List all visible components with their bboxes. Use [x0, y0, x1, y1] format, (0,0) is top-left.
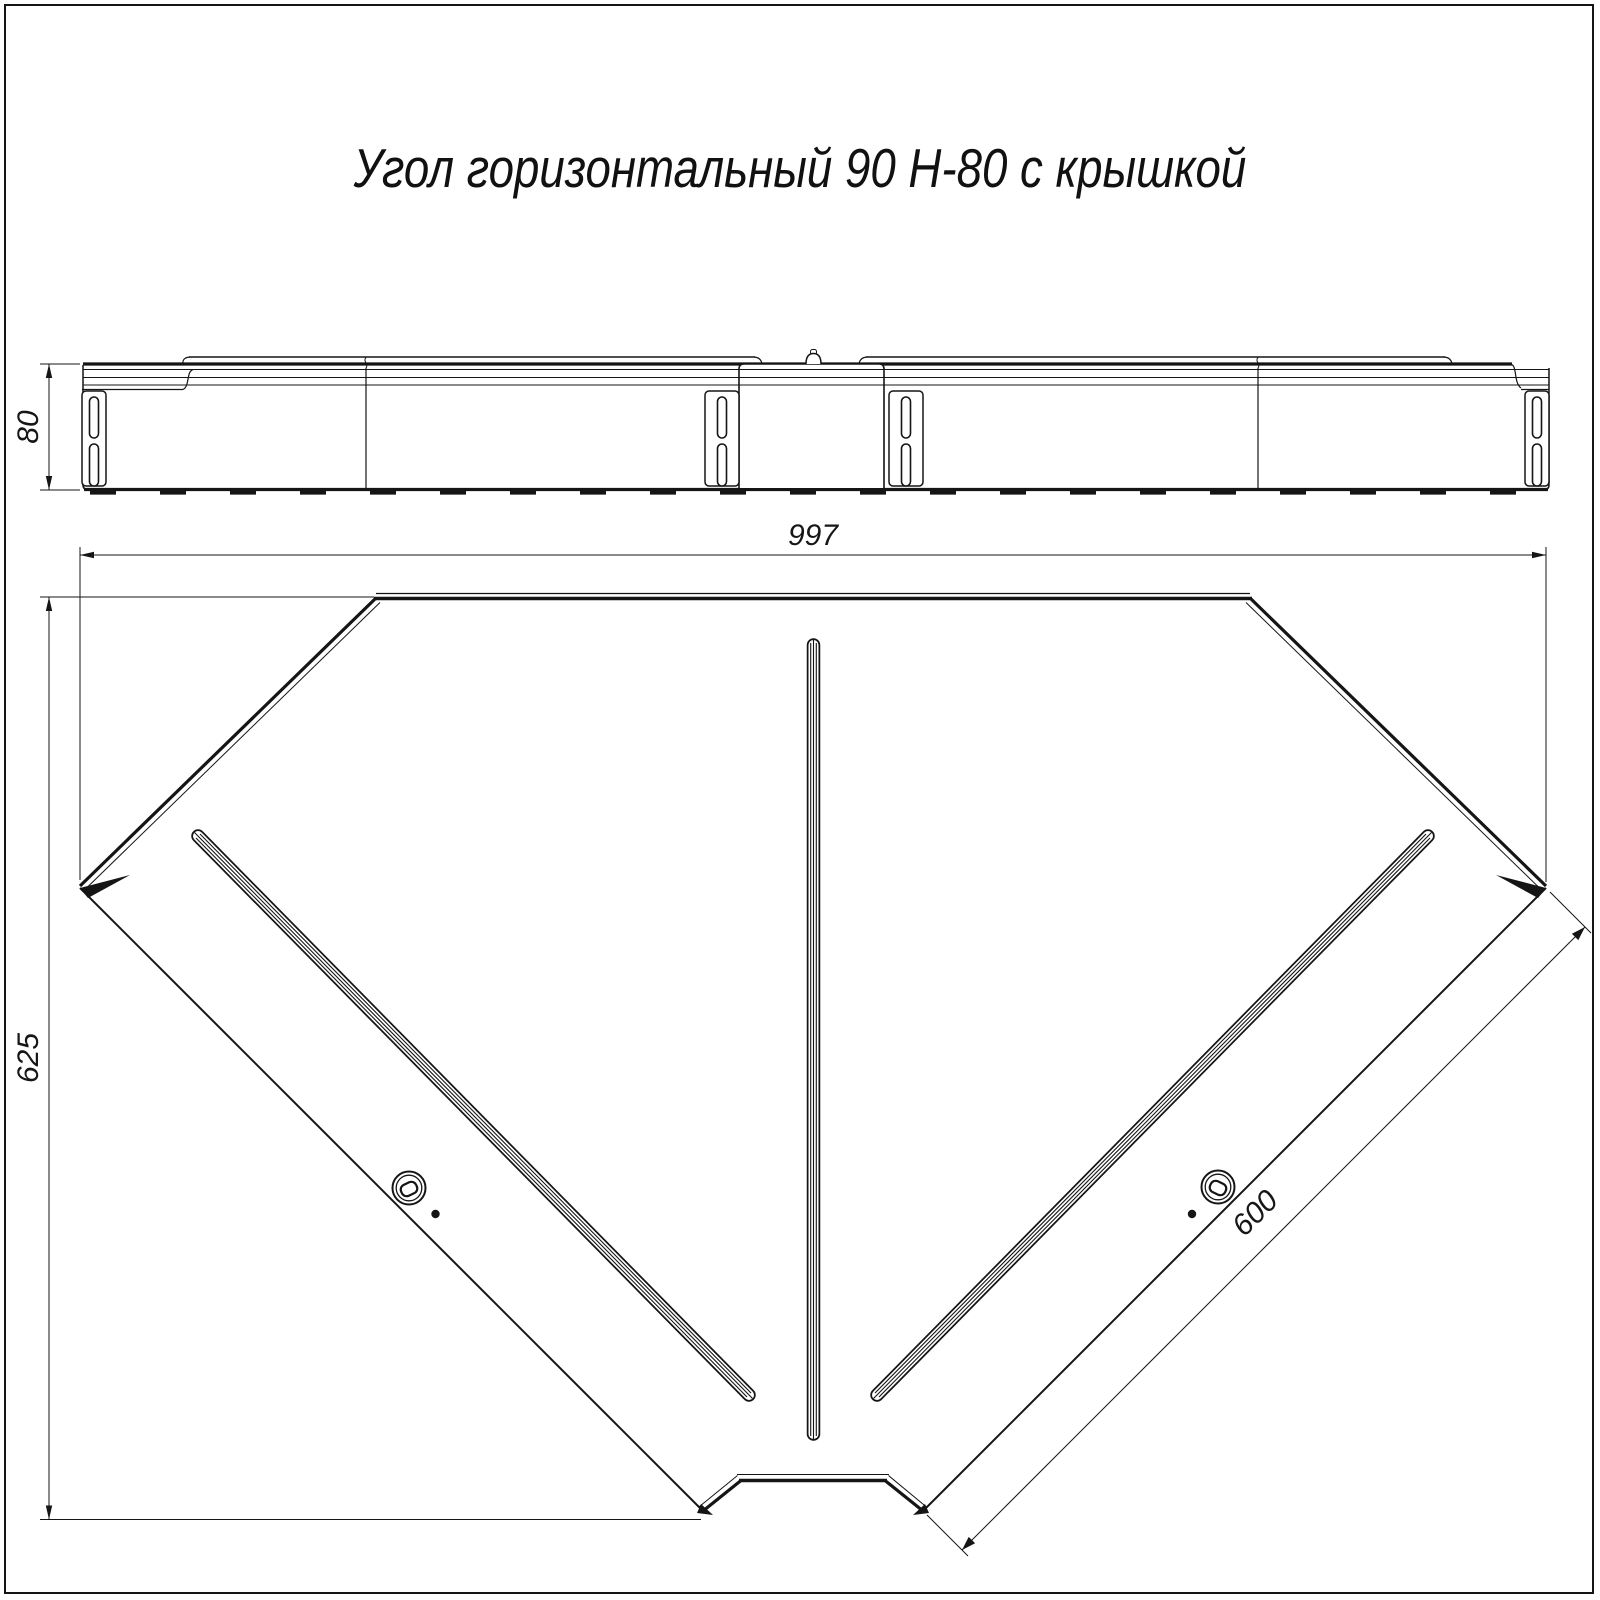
top-view [80, 594, 1546, 1516]
drawing-sheet: Угол горизонтальный 90 Н-80 с крышкой [0, 0, 1600, 1600]
dim-tray-width-label: 600 [1226, 1184, 1285, 1243]
arrowhead [46, 476, 52, 490]
cover-screw-left [393, 1172, 440, 1219]
dim-height-label: 80 [12, 410, 45, 444]
left-end-face [80, 888, 703, 1511]
arrowhead [46, 364, 52, 378]
rivet-dot [431, 1210, 439, 1218]
dim-depth-label: 625 [12, 1033, 45, 1083]
dimension-tray-width-600: 600 [927, 892, 1591, 1556]
technical-drawing: 80 997 [0, 0, 1600, 1600]
dimension-depth-625: 625 [12, 597, 701, 1520]
screw-head-dome [806, 354, 821, 365]
bolt-slot [718, 397, 727, 438]
stiffening-rib-center [811, 640, 817, 1439]
cover-screw-right [1188, 1171, 1235, 1219]
arrowhead [46, 597, 52, 611]
bolt-slot [902, 397, 911, 438]
dimension-height-80: 80 [12, 364, 80, 490]
bolt-slot [90, 397, 99, 438]
arrowhead [1532, 552, 1546, 558]
right-end-face [923, 888, 1546, 1511]
center-connector-block [739, 350, 884, 489]
bolt-slot [1533, 444, 1542, 486]
bolt-slot [1533, 397, 1542, 438]
bolt-slot [90, 444, 99, 486]
bolt-slot [902, 444, 911, 486]
side-view [82, 350, 1549, 493]
stiffening-rib-right [874, 833, 1432, 1399]
bolt-slot [718, 444, 727, 486]
arrowhead [46, 1506, 52, 1520]
dim-width-label: 997 [788, 519, 839, 552]
arrowhead [80, 552, 94, 558]
rivet-dot [1188, 1210, 1196, 1218]
stiffening-rib-left [195, 833, 753, 1399]
